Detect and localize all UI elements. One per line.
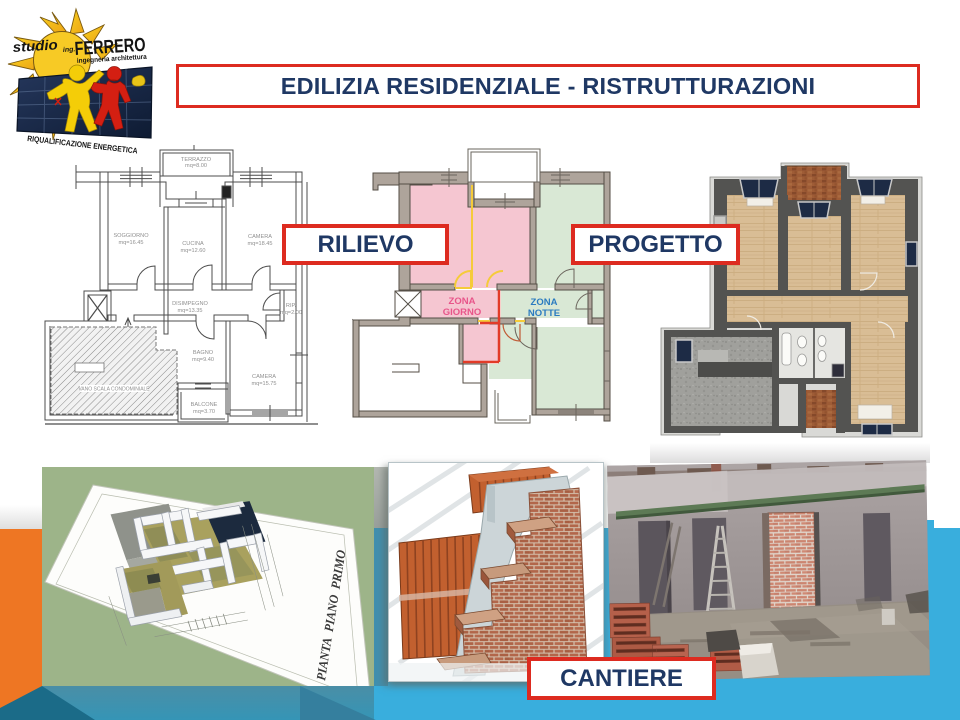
svg-text:mq=9.40: mq=9.40 [192,357,214,363]
svg-text:mq=16.45: mq=16.45 [118,240,143,246]
svg-text:mq=15.75: mq=15.75 [251,381,276,387]
svg-text:DISIMPEGNO: DISIMPEGNO [172,301,208,307]
svg-text:CUCINA: CUCINA [182,241,204,247]
svg-text:ZONA: ZONA [531,297,558,308]
svg-text:studio: studio [12,36,58,55]
svg-text:CAMERA: CAMERA [248,234,272,240]
svg-text:mq=18.45: mq=18.45 [247,241,272,247]
svg-text:BALCONE: BALCONE [191,402,218,408]
svg-text:mq=13.35: mq=13.35 [177,308,202,314]
svg-text:SOGGIORNO: SOGGIORNO [113,233,149,239]
svg-text:mq=3.70: mq=3.70 [193,409,215,415]
svg-text:ZONA: ZONA [449,296,476,307]
svg-text:mq=2.00: mq=2.00 [280,310,302,316]
svg-text:mq=8.00: mq=8.00 [185,163,207,169]
svg-text:GIORNO: GIORNO [443,307,482,318]
svg-text:BAGNO: BAGNO [193,350,214,356]
svg-text:NOTTE: NOTTE [528,308,560,319]
svg-text:CAMERA: CAMERA [252,374,276,380]
svg-text:RIP.: RIP. [286,303,297,309]
svg-text:VANO SCALA CONDOMINIALE: VANO SCALA CONDOMINIALE [78,387,150,393]
svg-text:mq=12.60: mq=12.60 [180,248,205,254]
